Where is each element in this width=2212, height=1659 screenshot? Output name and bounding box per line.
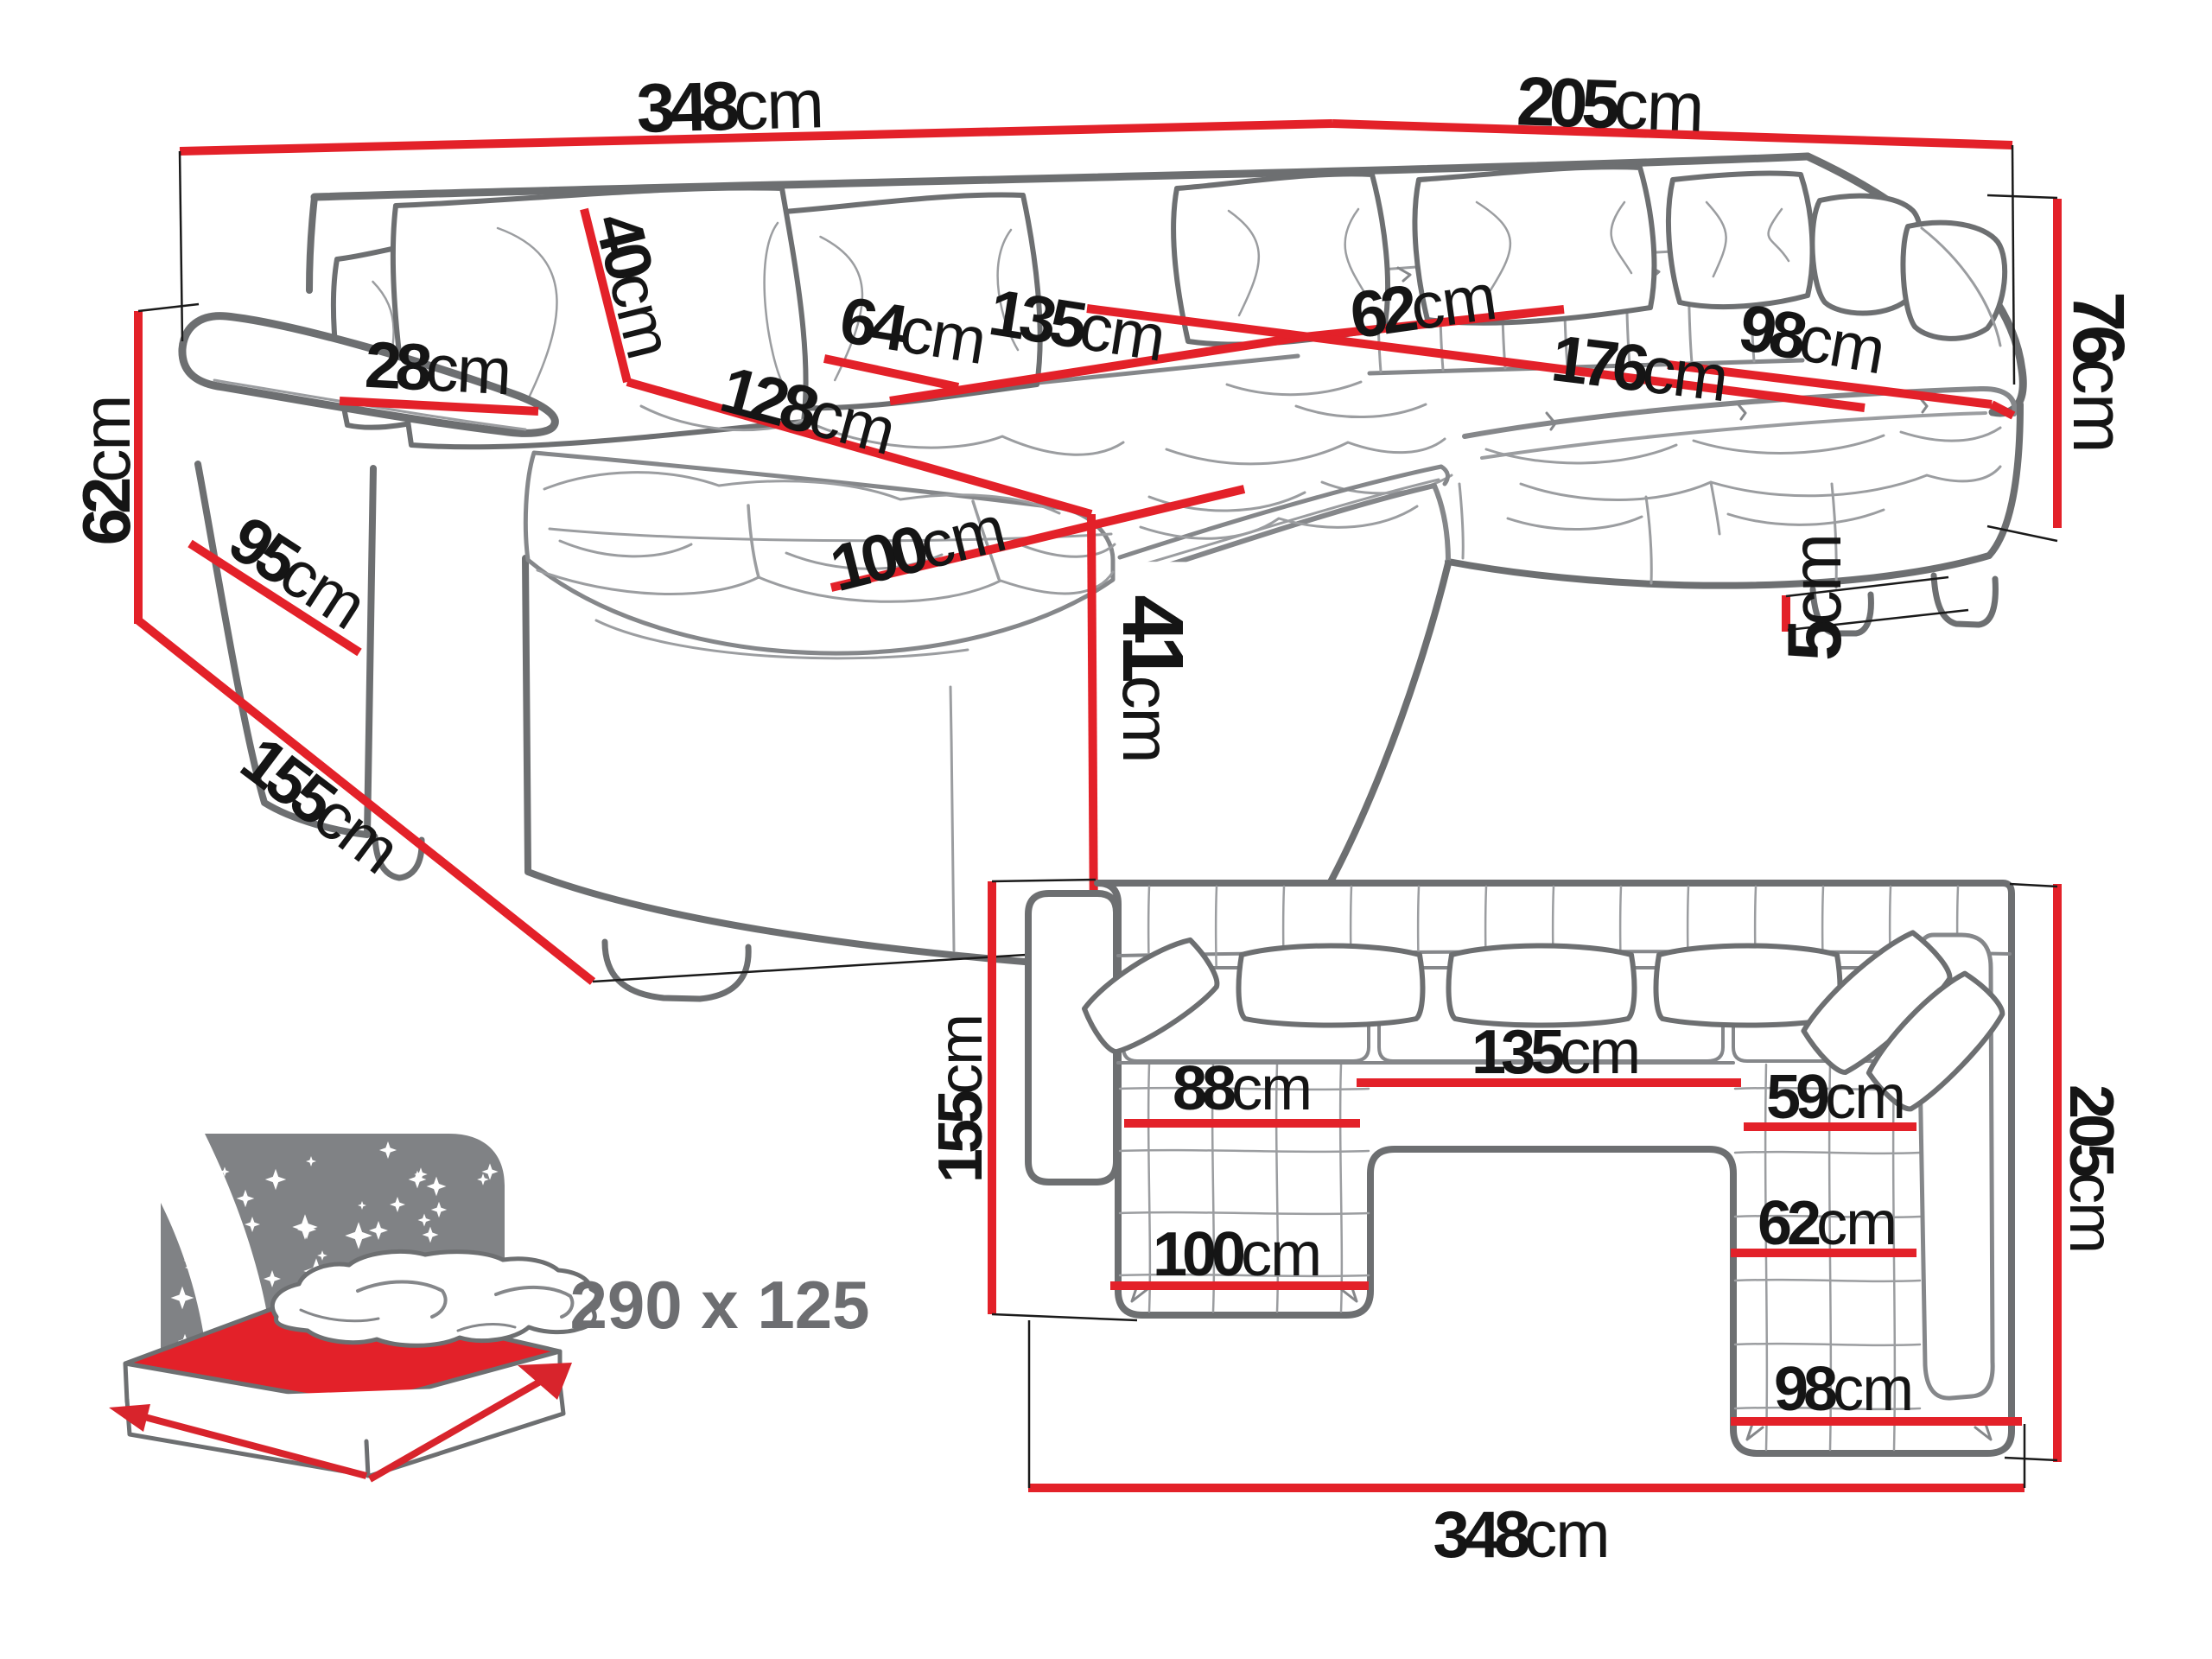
svg-text:290 x 125: 290 x 125 xyxy=(569,1267,869,1343)
svg-text:205cm: 205cm xyxy=(1516,62,1704,145)
svg-text:76cm: 76cm xyxy=(2058,291,2139,451)
svg-text:88cm: 88cm xyxy=(1173,1054,1311,1123)
svg-text:205cm: 205cm xyxy=(2056,1084,2126,1252)
svg-text:98cm: 98cm xyxy=(1774,1355,1912,1424)
svg-text:155cm: 155cm xyxy=(926,1015,995,1183)
svg-text:62cm: 62cm xyxy=(1758,1189,1896,1258)
svg-text:100cm: 100cm xyxy=(1153,1220,1320,1289)
svg-text:5cm: 5cm xyxy=(1771,535,1857,661)
svg-text:28cm: 28cm xyxy=(363,328,512,410)
svg-text:135cm: 135cm xyxy=(1471,1018,1639,1087)
svg-text:348cm: 348cm xyxy=(1433,1498,1608,1572)
svg-text:59cm: 59cm xyxy=(1766,1063,1904,1132)
svg-text:348cm: 348cm xyxy=(636,65,823,147)
svg-text:62cm: 62cm xyxy=(68,397,144,546)
